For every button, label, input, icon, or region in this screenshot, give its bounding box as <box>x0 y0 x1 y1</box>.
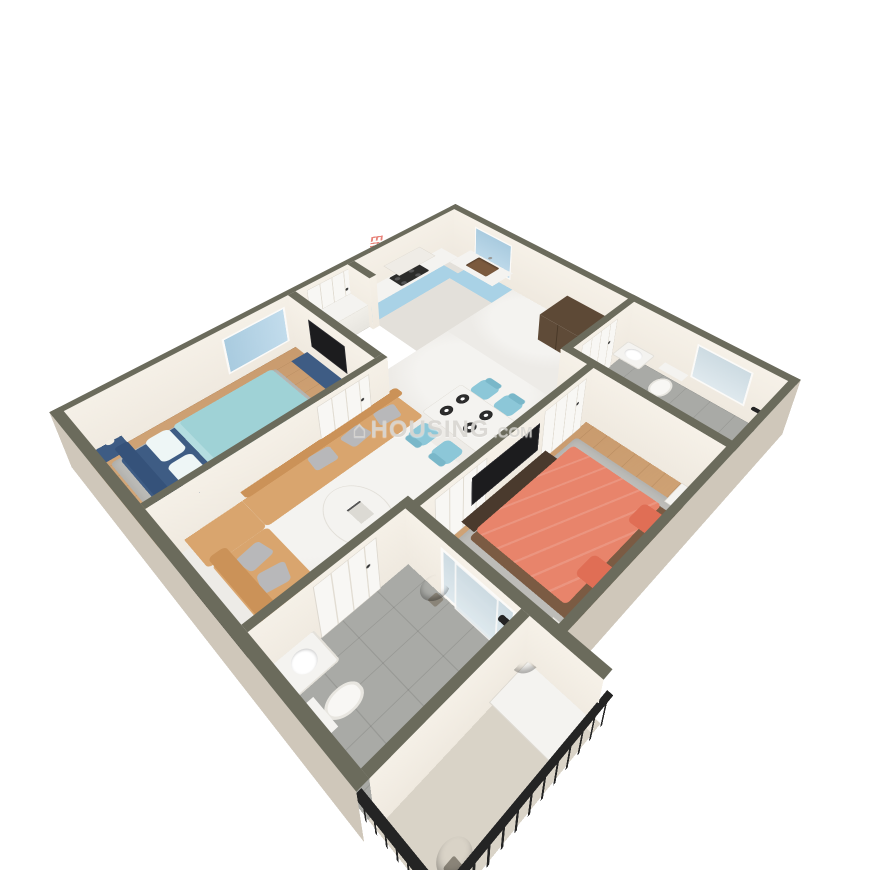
housing-logo-icon: ⌂ <box>352 416 367 444</box>
watermark-tld: .COM <box>494 424 533 441</box>
watermark-name: HOUSING <box>371 416 490 444</box>
housing-watermark: ⌂ HOUSING .COM <box>352 416 533 444</box>
apartment-plan: Entry <box>82 252 819 870</box>
